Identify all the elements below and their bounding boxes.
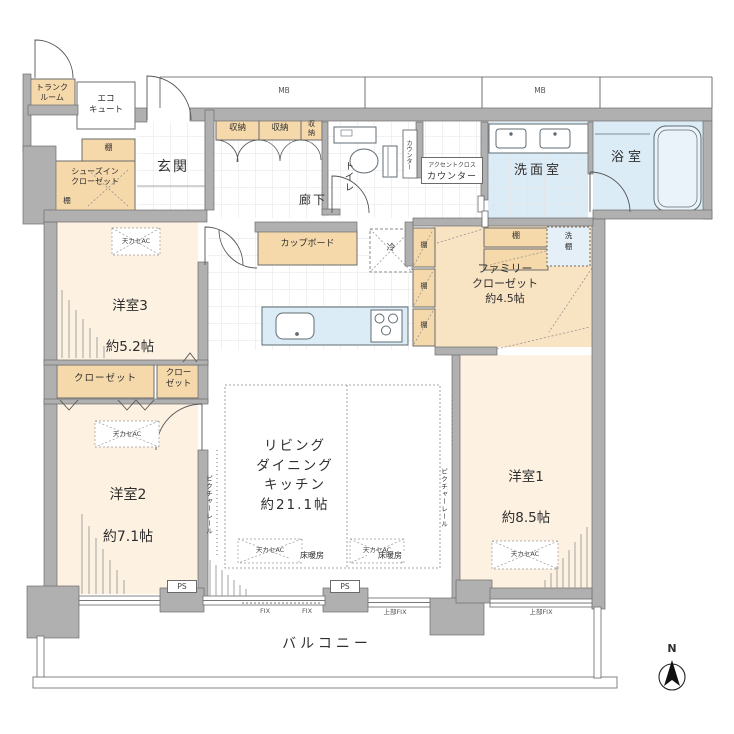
cupboard-box: [258, 230, 357, 265]
balcony-side: [594, 607, 601, 678]
storage-box-2: [259, 119, 301, 140]
balcony-post: [37, 636, 44, 677]
eco-cute-box: [77, 82, 135, 129]
toilet-tank: [383, 146, 397, 177]
shoes-closet-box: [55, 161, 135, 213]
toilet-cistern: [334, 127, 376, 143]
family-closet-hanger: [484, 249, 548, 270]
closet-wide-box: [57, 365, 154, 398]
kitchen-sink: [276, 313, 314, 339]
floor-plan-drawing: [0, 0, 734, 734]
accent-counter-label: カウンター: [422, 169, 482, 182]
bathtub: [654, 126, 701, 211]
storage-box-3: [301, 119, 322, 140]
balcony-edge: [33, 677, 617, 688]
family-closet-shelf: [484, 228, 548, 247]
washer-space: [547, 227, 590, 266]
toilet-counter-strip: [403, 130, 417, 178]
storage-box-1: [216, 119, 259, 140]
common-corridor-band: [160, 77, 712, 108]
pipe-space-box-2: PS: [330, 580, 360, 593]
compass-icon: [659, 660, 685, 690]
sink-right: [540, 129, 570, 148]
shelf-box: [82, 139, 135, 161]
accent-cloth-counter-box: アクセントクロス カウンター: [421, 157, 483, 184]
sliding-door: [478, 196, 484, 212]
sink-left: [496, 129, 526, 148]
floor-plan: トランク ルーム エコ キュート 棚 シューズイン クローゼット 棚 玄関 収納…: [0, 0, 734, 734]
toilet-bowl: [350, 149, 378, 173]
trunk-room-box: [30, 79, 75, 108]
pipe-space-box-1: PS: [167, 580, 197, 593]
closet-small-box: [157, 365, 200, 398]
accent-cloth-label: アクセントクロス: [422, 160, 482, 169]
